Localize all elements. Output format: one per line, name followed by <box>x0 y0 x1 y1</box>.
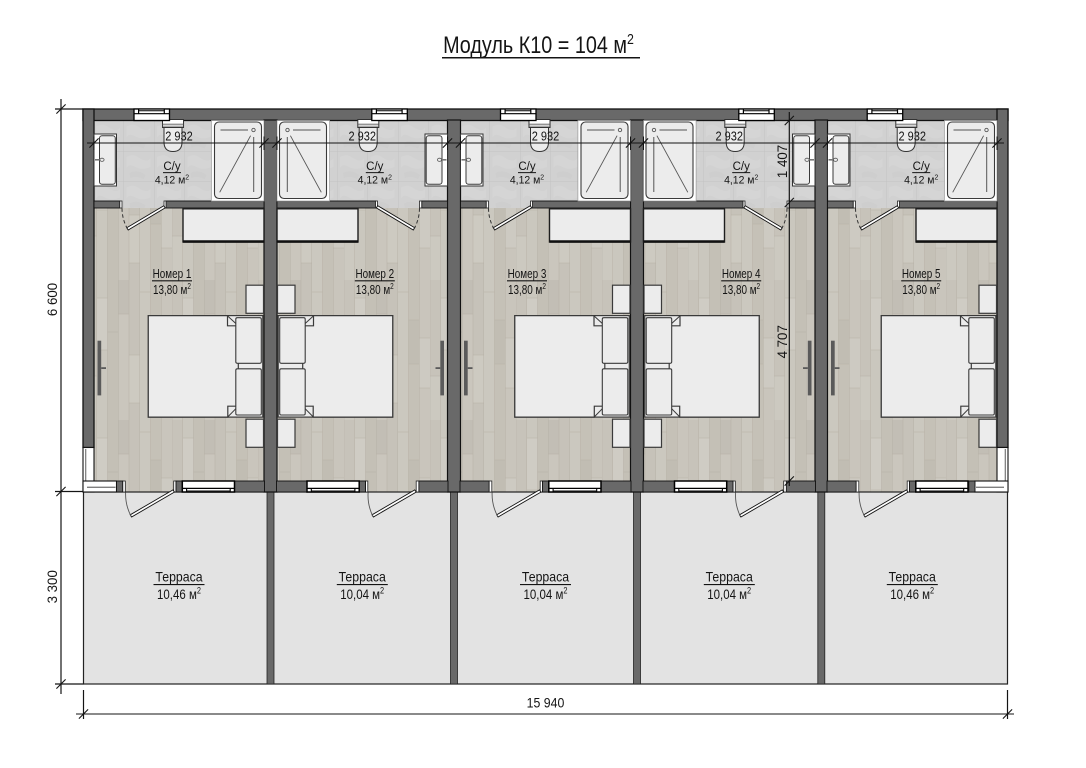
svg-text:С/у: С/у <box>163 161 181 173</box>
svg-text:10,46 м2: 10,46 м2 <box>890 586 934 602</box>
svg-text:Номер 5: Номер 5 <box>902 267 941 282</box>
svg-text:Терраса: Терраса <box>155 569 203 585</box>
svg-text:4,12 м2: 4,12 м2 <box>155 173 189 186</box>
svg-text:Модуль К10 = 104 м2: Модуль К10 = 104 м2 <box>443 31 634 59</box>
svg-text:13,80 м2: 13,80 м2 <box>508 281 546 297</box>
svg-text:С/у: С/у <box>366 161 384 173</box>
svg-text:Терраса: Терраса <box>706 569 754 585</box>
svg-text:Номер 1: Номер 1 <box>153 267 192 282</box>
svg-text:2 932: 2 932 <box>715 130 743 144</box>
svg-text:13,80 м2: 13,80 м2 <box>902 281 940 297</box>
svg-text:4,12 м2: 4,12 м2 <box>510 173 544 186</box>
svg-text:Номер 4: Номер 4 <box>722 267 761 282</box>
svg-text:С/у: С/у <box>518 161 536 173</box>
svg-text:Терраса: Терраса <box>522 569 570 585</box>
svg-text:10,04 м2: 10,04 м2 <box>707 586 751 602</box>
svg-text:10,46 м2: 10,46 м2 <box>157 586 201 602</box>
svg-text:15 940: 15 940 <box>527 695 565 711</box>
svg-text:4,12 м2: 4,12 м2 <box>358 173 392 186</box>
svg-text:С/у: С/у <box>733 161 751 173</box>
svg-text:2 932: 2 932 <box>348 130 376 144</box>
svg-text:1 407: 1 407 <box>775 145 790 178</box>
svg-text:Номер 3: Номер 3 <box>508 267 547 282</box>
svg-text:13,80 м2: 13,80 м2 <box>153 281 191 297</box>
svg-text:2 932: 2 932 <box>898 130 926 144</box>
svg-text:4,12 м2: 4,12 м2 <box>904 173 938 186</box>
svg-text:С/у: С/у <box>913 161 931 173</box>
svg-text:10,04 м2: 10,04 м2 <box>524 586 568 602</box>
svg-text:Номер 2: Номер 2 <box>355 267 394 282</box>
svg-text:3 300: 3 300 <box>45 570 60 604</box>
svg-text:2 932: 2 932 <box>165 130 193 144</box>
svg-text:13,80 м2: 13,80 м2 <box>722 281 760 297</box>
svg-text:4,12 м2: 4,12 м2 <box>724 173 758 186</box>
svg-text:4 707: 4 707 <box>775 325 790 358</box>
svg-text:Терраса: Терраса <box>339 569 387 585</box>
svg-text:Терраса: Терраса <box>889 569 937 585</box>
svg-text:10,04 м2: 10,04 м2 <box>340 586 384 602</box>
svg-text:6 600: 6 600 <box>45 282 60 316</box>
svg-text:13,80 м2: 13,80 м2 <box>356 281 394 297</box>
svg-text:2 932: 2 932 <box>532 130 560 144</box>
